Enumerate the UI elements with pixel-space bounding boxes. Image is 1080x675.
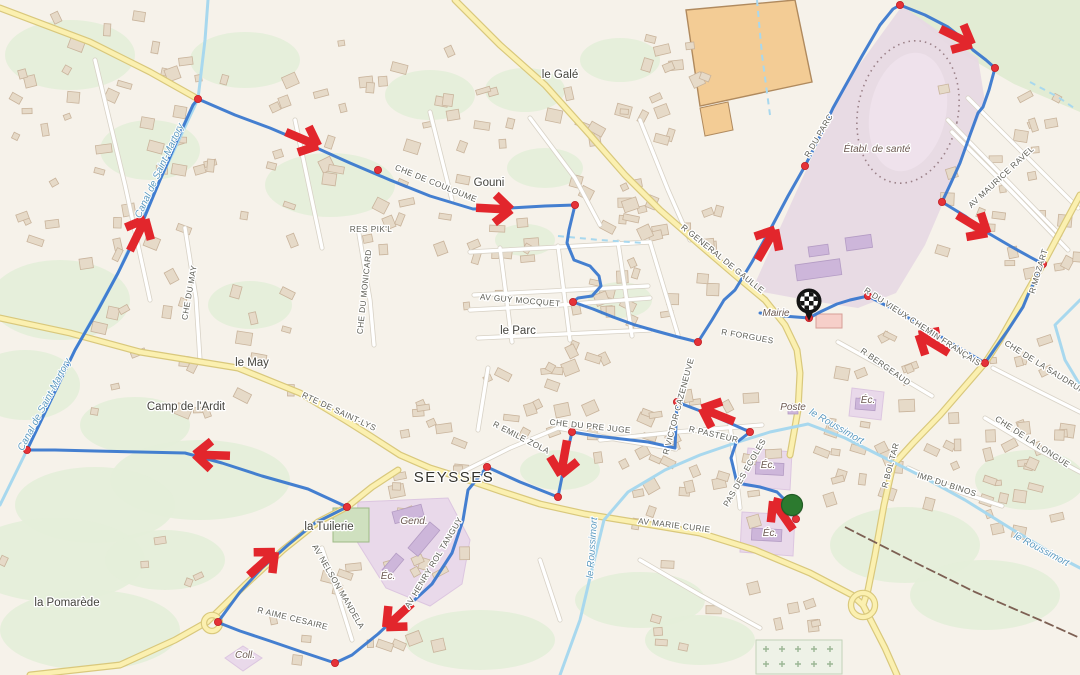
building	[90, 408, 98, 416]
poi-label: Établ. de santé	[844, 142, 911, 155]
building	[301, 635, 311, 642]
building	[417, 404, 430, 411]
place-label: Camp de l'Ardit	[147, 401, 226, 413]
poi-label: Éc.	[861, 393, 875, 406]
building	[655, 639, 667, 646]
building	[620, 109, 629, 115]
building	[140, 117, 155, 130]
poi-label: Mairie	[762, 308, 790, 319]
building	[113, 217, 121, 228]
building	[362, 234, 373, 243]
building	[1027, 171, 1036, 180]
building	[366, 82, 375, 93]
building	[442, 93, 453, 106]
building	[400, 429, 410, 438]
building	[154, 536, 166, 545]
building	[992, 211, 1006, 219]
building	[545, 108, 563, 123]
route-waypoint[interactable]	[991, 64, 998, 71]
building	[654, 627, 663, 635]
building	[685, 42, 694, 50]
place-label: la Tuilerie	[304, 521, 353, 533]
poi-label: Gend.	[400, 516, 427, 527]
building	[95, 144, 112, 154]
building	[697, 273, 709, 284]
building	[178, 57, 193, 66]
building	[860, 421, 870, 428]
route-waypoint[interactable]	[896, 1, 903, 8]
poi-label: Éc.	[381, 569, 395, 582]
building	[111, 383, 120, 390]
building	[811, 619, 821, 627]
building	[338, 40, 345, 46]
building	[787, 602, 799, 614]
poi-label: Éc.	[761, 458, 775, 471]
mairie-building	[816, 314, 842, 328]
building	[554, 402, 571, 418]
route-waypoint[interactable]	[981, 359, 988, 366]
building	[1073, 252, 1080, 262]
route-waypoint[interactable]	[746, 428, 753, 435]
building	[431, 638, 446, 652]
building	[858, 473, 866, 485]
building	[67, 91, 80, 103]
street-label: RES PIK'L	[350, 224, 393, 234]
building	[1013, 489, 1027, 503]
building	[998, 493, 1008, 504]
place-label: la Pomarède	[34, 597, 99, 609]
building	[173, 105, 187, 119]
place-label: le May	[235, 357, 269, 369]
place-label: Gouni	[474, 177, 505, 189]
poi-label: Coll.	[235, 650, 255, 661]
building	[22, 108, 32, 114]
building	[171, 163, 187, 176]
building	[748, 490, 760, 497]
building	[1054, 430, 1064, 440]
green-area	[405, 610, 555, 670]
building	[954, 439, 961, 451]
building	[834, 366, 850, 380]
building	[1005, 261, 1015, 266]
building	[379, 244, 388, 255]
building	[141, 561, 149, 568]
route-waypoint[interactable]	[568, 428, 575, 435]
building	[162, 305, 172, 318]
building	[765, 449, 781, 459]
building	[1013, 129, 1028, 142]
route-waypoint[interactable]	[374, 166, 381, 173]
route-waypoint[interactable]	[694, 338, 701, 345]
green-area	[208, 281, 292, 329]
building	[45, 219, 59, 228]
cemetery	[756, 640, 842, 674]
building	[322, 172, 337, 186]
building	[132, 11, 145, 22]
building	[489, 225, 505, 232]
building	[41, 123, 50, 136]
building	[593, 452, 602, 464]
route-waypoint[interactable]	[331, 659, 338, 666]
building	[503, 414, 519, 422]
building	[103, 24, 110, 37]
building	[345, 563, 361, 572]
building	[948, 412, 959, 423]
sports-building	[700, 102, 733, 136]
route-waypoint[interactable]	[569, 298, 576, 305]
poi-label: Éc.	[763, 526, 777, 539]
building	[1044, 118, 1058, 129]
route-waypoint[interactable]	[554, 493, 561, 500]
route-waypoint[interactable]	[938, 198, 945, 205]
building	[678, 643, 688, 652]
route-waypoint[interactable]	[343, 503, 350, 510]
building	[18, 69, 28, 79]
building	[520, 255, 535, 263]
building	[207, 159, 215, 172]
building	[106, 306, 119, 320]
building	[986, 430, 996, 442]
building	[661, 560, 674, 568]
route-waypoint[interactable]	[571, 201, 578, 208]
place-label: le Parc	[500, 325, 536, 337]
building	[392, 483, 400, 491]
building	[460, 547, 470, 560]
building	[743, 393, 759, 404]
poi-label: Poste	[780, 402, 806, 413]
building	[151, 41, 160, 54]
building	[235, 331, 252, 346]
building	[707, 283, 720, 296]
map-canvas[interactable]: le GaléGounile Parcle MayCamp de l'Ardit…	[0, 0, 1080, 675]
building	[517, 218, 528, 228]
place-label: le Galé	[542, 69, 578, 81]
building	[899, 399, 915, 412]
route-waypoint[interactable]	[194, 95, 201, 102]
building	[435, 423, 452, 434]
place-label: SEYSSES	[414, 469, 495, 486]
building	[240, 211, 248, 220]
building	[292, 655, 303, 666]
building	[938, 84, 950, 94]
building	[378, 76, 387, 86]
route-waypoint[interactable]	[801, 162, 808, 169]
building	[747, 581, 761, 595]
start-marker[interactable]	[782, 495, 803, 516]
building	[831, 449, 840, 456]
building	[499, 139, 506, 148]
map-viewport: le GaléGounile Parcle MayCamp de l'Ardit…	[0, 0, 1080, 675]
building	[79, 257, 93, 269]
route-waypoint[interactable]	[214, 618, 221, 625]
building	[446, 109, 460, 121]
